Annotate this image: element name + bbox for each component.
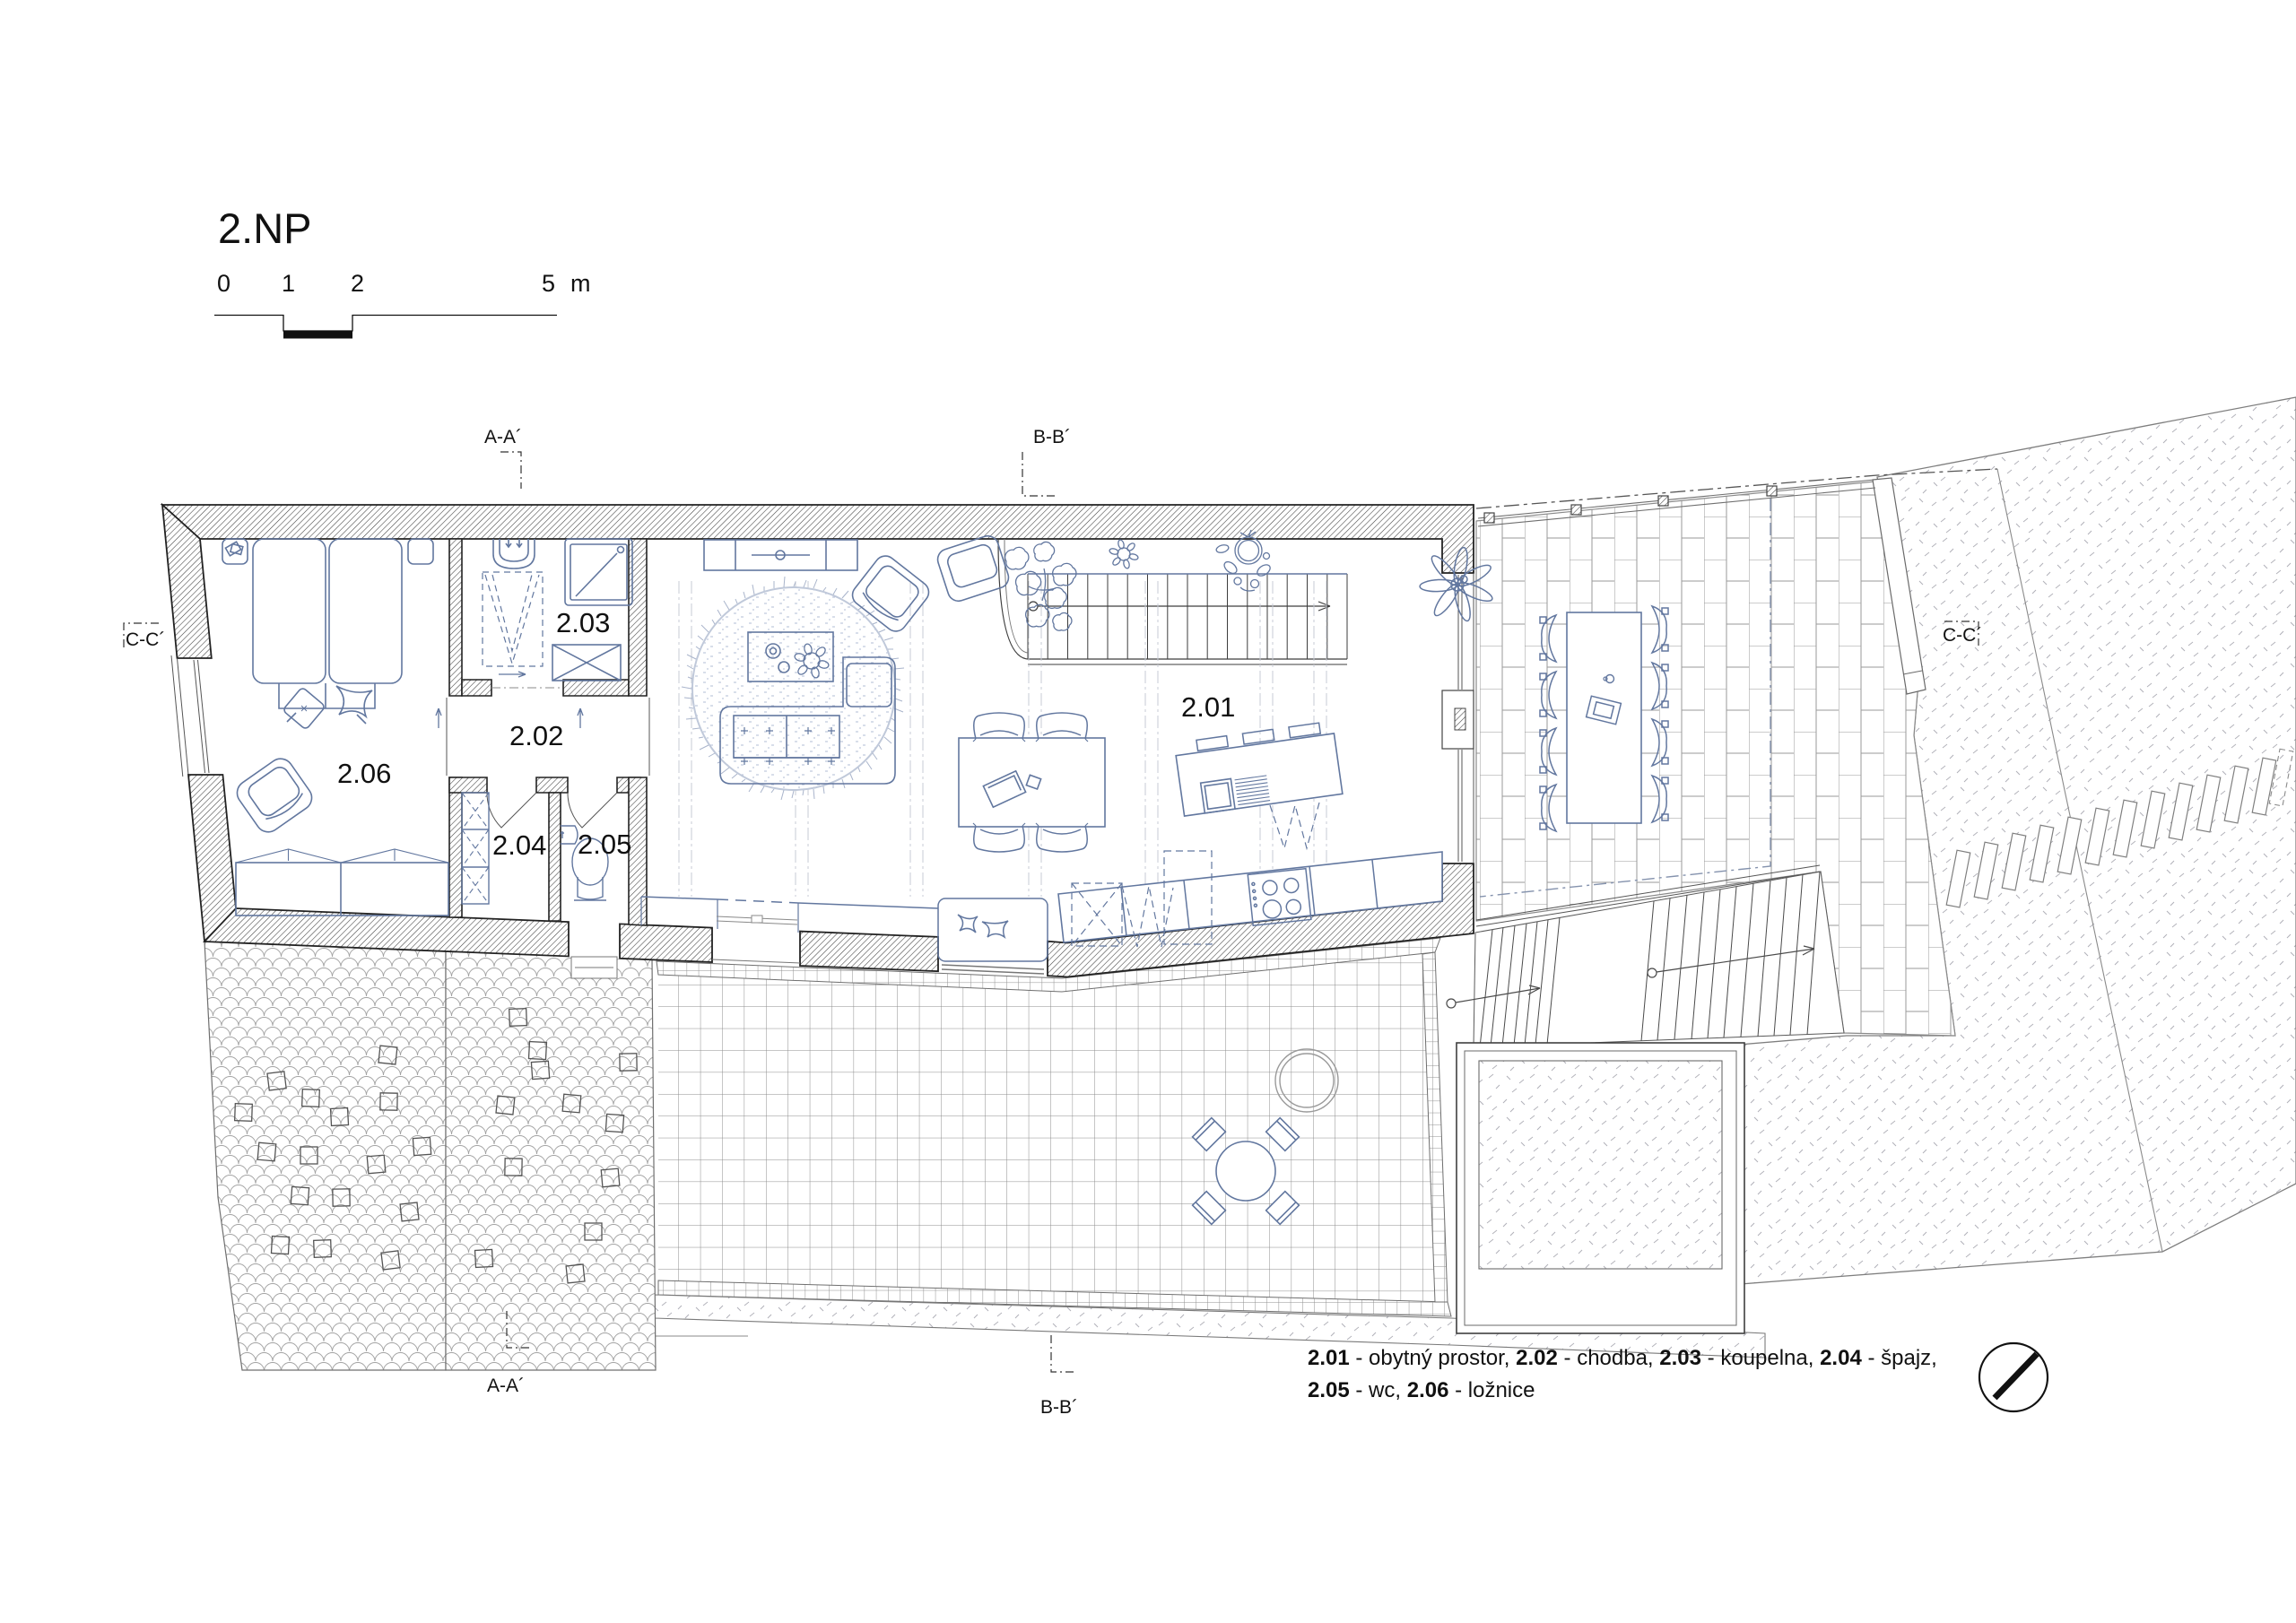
- svg-text:C-C´: C-C´: [1943, 625, 1982, 646]
- svg-text:5: 5: [542, 270, 555, 297]
- svg-text:2.NP: 2.NP: [218, 204, 312, 252]
- svg-text:2.01 - obytný prostor, 2.02 -: 2.01 - obytný prostor, 2.02 - chodba, 2.…: [1308, 1346, 1937, 1370]
- svg-text:C-C´: C-C´: [126, 629, 165, 650]
- svg-text:2.03: 2.03: [556, 607, 610, 638]
- svg-text:2.02: 2.02: [509, 720, 563, 751]
- svg-text:2.04: 2.04: [492, 829, 546, 861]
- svg-text:0: 0: [217, 270, 230, 297]
- svg-text:2.05: 2.05: [578, 829, 631, 860]
- svg-text:2.06: 2.06: [337, 758, 391, 789]
- svg-text:2.05 - wc, 2.06 - ložnice: 2.05 - wc, 2.06 - ložnice: [1308, 1378, 1535, 1402]
- svg-text:2.01: 2.01: [1181, 691, 1235, 723]
- svg-text:1: 1: [282, 270, 295, 297]
- svg-text:A-A´: A-A´: [484, 427, 522, 447]
- svg-text:2: 2: [351, 270, 364, 297]
- svg-text:A-A´: A-A´: [487, 1376, 525, 1396]
- svg-text:m: m: [570, 270, 591, 297]
- svg-text:B-B´: B-B´: [1033, 427, 1071, 447]
- svg-text:B-B´: B-B´: [1040, 1397, 1078, 1418]
